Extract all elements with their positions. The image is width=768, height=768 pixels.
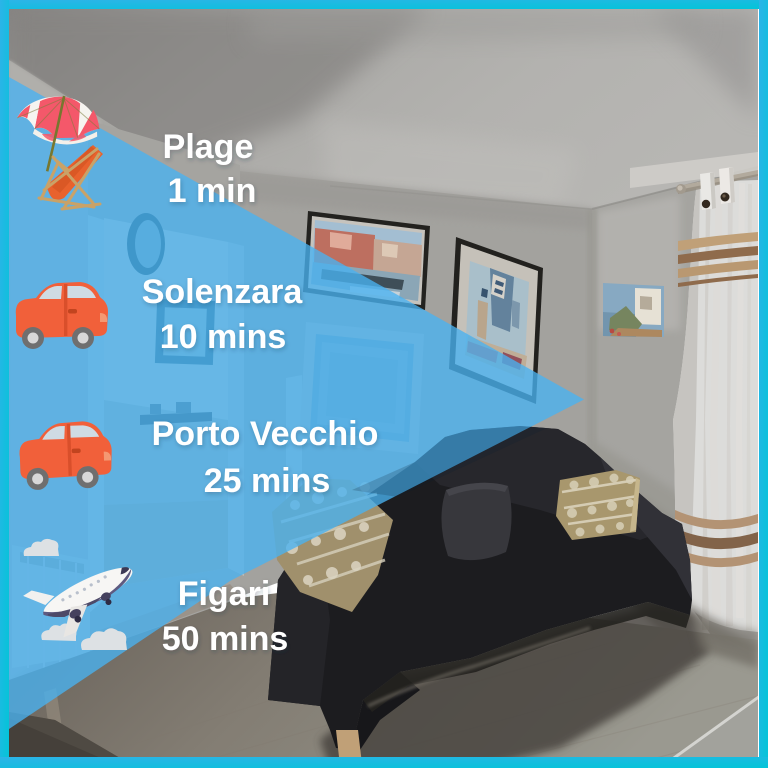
svg-text:1 min: 1 min [168,172,257,210]
svg-text:Porto Vecchio: Porto Vecchio [152,415,379,453]
svg-text:25 mins: 25 mins [204,462,331,500]
svg-text:50 mins: 50 mins [162,620,289,658]
svg-text:Figari: Figari [178,575,271,613]
svg-text:Plage: Plage [163,128,254,166]
svg-text:10 mins: 10 mins [160,318,287,356]
svg-text:Solenzara: Solenzara [142,273,304,311]
